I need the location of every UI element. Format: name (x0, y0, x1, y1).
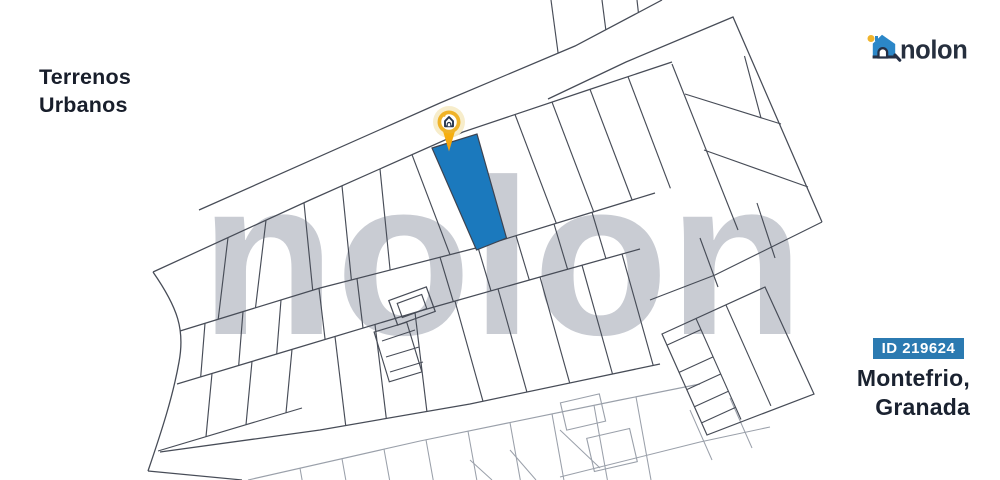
svg-text:nolon: nolon (900, 37, 967, 65)
